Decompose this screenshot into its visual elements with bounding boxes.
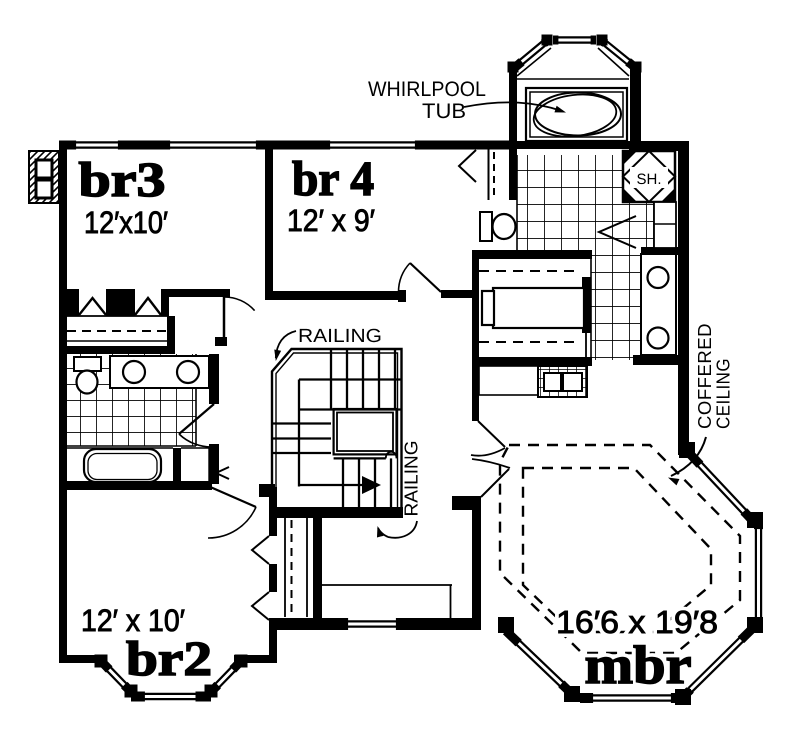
svg-text:RAILING: RAILING (402, 441, 422, 517)
svg-text:br2: br2 (126, 631, 212, 686)
svg-text:RAILING: RAILING (298, 326, 382, 347)
svg-text:SH.: SH. (636, 171, 661, 188)
svg-text:12′ x 9′: 12′ x 9′ (287, 203, 375, 238)
svg-text:CEILING: CEILING (714, 358, 734, 429)
svg-text:WHIRLPOOL: WHIRLPOOL (368, 78, 486, 101)
svg-text:br3: br3 (78, 152, 165, 207)
svg-text:br 4: br 4 (292, 151, 374, 206)
svg-text:mbr: mbr (584, 635, 691, 695)
svg-text:12′x10′: 12′x10′ (84, 205, 168, 240)
svg-text:TUB: TUB (422, 100, 466, 123)
svg-text:COFFERED: COFFERED (695, 323, 715, 429)
